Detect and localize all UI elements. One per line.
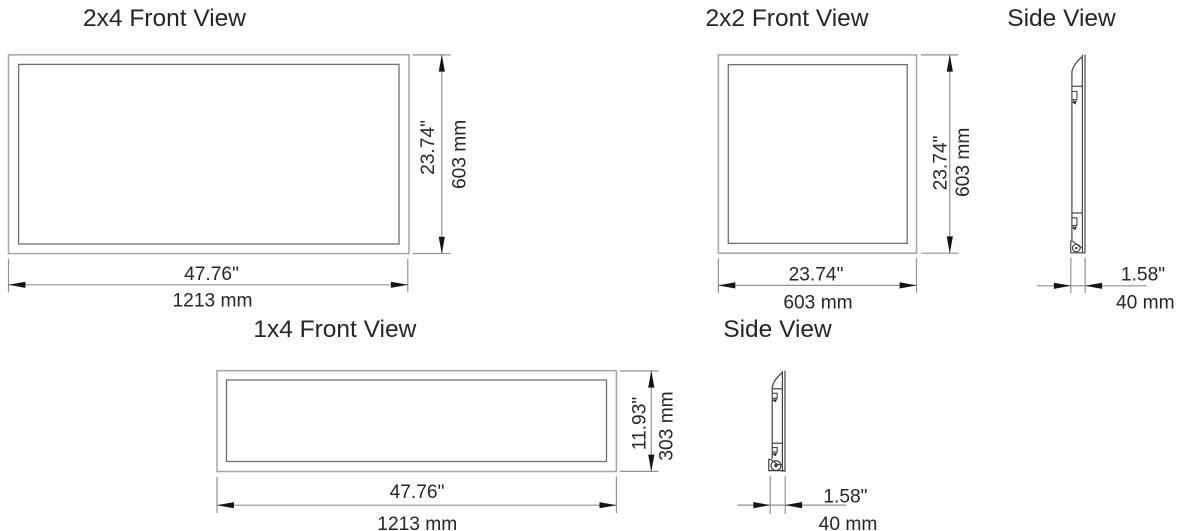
- svg-text:23.74": 23.74": [418, 120, 439, 175]
- svg-text:1.58": 1.58": [823, 487, 867, 508]
- svg-text:303 mm: 303 mm: [657, 391, 678, 460]
- svg-text:40 mm: 40 mm: [819, 514, 878, 531]
- svg-text:23.74": 23.74": [789, 264, 844, 285]
- svg-text:23.74": 23.74": [930, 136, 951, 191]
- svg-text:2x2 Front View: 2x2 Front View: [706, 5, 869, 32]
- svg-text:603 mm: 603 mm: [450, 120, 471, 189]
- svg-text:1x4 Front View: 1x4 Front View: [253, 316, 416, 343]
- svg-text:11.93": 11.93": [629, 397, 650, 450]
- svg-text:603 mm: 603 mm: [783, 293, 852, 314]
- svg-text:2x4 Front View: 2x4 Front View: [83, 5, 246, 32]
- svg-text:47.76": 47.76": [390, 482, 445, 503]
- svg-text:1.58": 1.58": [1121, 265, 1165, 286]
- svg-text:1213 mm: 1213 mm: [377, 514, 457, 531]
- svg-text:Side View: Side View: [723, 316, 832, 343]
- svg-text:603 mm: 603 mm: [953, 128, 974, 197]
- svg-text:40 mm: 40 mm: [1116, 292, 1175, 313]
- svg-text:Side View: Side View: [1007, 5, 1116, 32]
- svg-text:1213 mm: 1213 mm: [173, 290, 253, 311]
- svg-text:47.76": 47.76": [184, 264, 239, 285]
